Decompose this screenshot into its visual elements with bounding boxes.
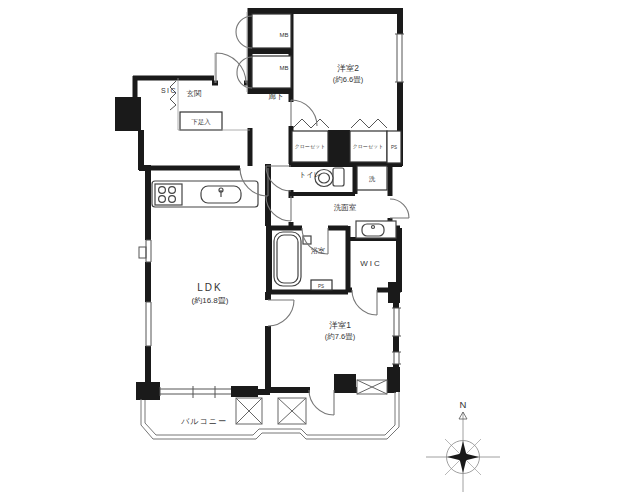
room-label-wic: WIC [360,259,382,268]
floor-plan: 洋室2 (約6.6畳) LDK (約16.8畳) 洋室1 (約7.6畳) バルコ… [0,0,625,500]
closet-1-folding-door [293,119,329,128]
room-label-washroom: 洗面室 [334,203,357,212]
pillar-e-upper [388,282,400,303]
room-label-genkan: 玄関 [187,89,203,98]
room-label-hallway: 廊下 [269,92,285,101]
closet-2-folding-door [351,119,387,128]
room-label-closet-1: クローゼット [295,143,326,149]
stove [155,184,182,205]
window-ldk-west-1 [146,240,151,262]
balcony-door [309,390,334,415]
wic-door [352,290,377,315]
window-yoshitsu1-east-2 [392,352,401,364]
pillar-s [334,374,356,391]
entrance-door [216,53,246,83]
pillar-sw [136,382,160,400]
window-ldk-west-2 [146,302,151,346]
bathtub-inner [277,235,298,283]
room-label-ps-2: PS [318,284,324,289]
room-label-ps-1: PS [391,145,397,150]
compass-north-label: N [460,399,467,410]
room-label-bathroom: 浴室 [311,247,325,255]
floor-plan-page: 洋室2 (約6.6畳) LDK (約16.8畳) 洋室1 (約7.6畳) バルコ… [0,0,625,500]
kitchen [152,181,258,207]
room-label-laundry: 洗 [369,175,376,183]
sill-box [231,386,258,397]
yoshitsu1-door [268,300,294,326]
meter-box-2 [252,56,291,88]
service-door [390,199,409,218]
room-area-yoshitsu1: (約7.6畳) [325,332,356,341]
room-label-closet-2: クローゼット [353,143,384,149]
room-label-mb-1: MB [280,32,289,38]
compass-point-w [447,453,463,461]
compass-rose [426,412,500,492]
burner [169,196,176,203]
burner [169,187,176,194]
washbasin-faucet [372,226,375,229]
toilet-tank [333,168,344,186]
window-sill-bump [139,247,146,258]
wall-step-block [115,97,141,131]
sliding-window-ldk-south [160,386,231,398]
compass-point-e [463,453,479,461]
room-labels: 洋室2 (約6.6畳) LDK (約16.8畳) 洋室1 (約7.6畳) バルコ… [161,32,467,426]
room-label-mb-2: MB [280,65,289,71]
window-yoshitsu2-east [395,34,404,82]
room-label-yoshitsu1: 洋室1 [329,320,351,330]
burner [159,196,166,203]
pillar-se [387,367,400,392]
balcony-rail-outer [141,392,399,439]
balcony-outline [141,392,399,439]
room-area-ldk: (約16.8畳) [192,296,229,305]
window-yoshitsu1-east-1 [392,308,401,336]
balcony-rail-inner [145,392,395,435]
room-label-toilet: トイレ [299,171,321,178]
room-label-ldk: LDK [197,282,222,293]
room-label-sic: SIC [161,87,177,94]
sic-folding-door [170,81,176,110]
vanity [356,221,396,238]
meter-box-1 [252,14,291,48]
room-label-shoes: 下足入 [191,118,211,126]
room-label-yoshitsu2: 洋室2 [337,63,359,73]
door-arcs [216,16,409,415]
burner [159,187,166,194]
yoshitsu2-door [291,100,317,126]
room-area-yoshitsu2: (約6.6畳) [333,75,364,84]
room-label-balcony: バルコニー [180,417,227,426]
closet-divider-wall [328,130,350,163]
